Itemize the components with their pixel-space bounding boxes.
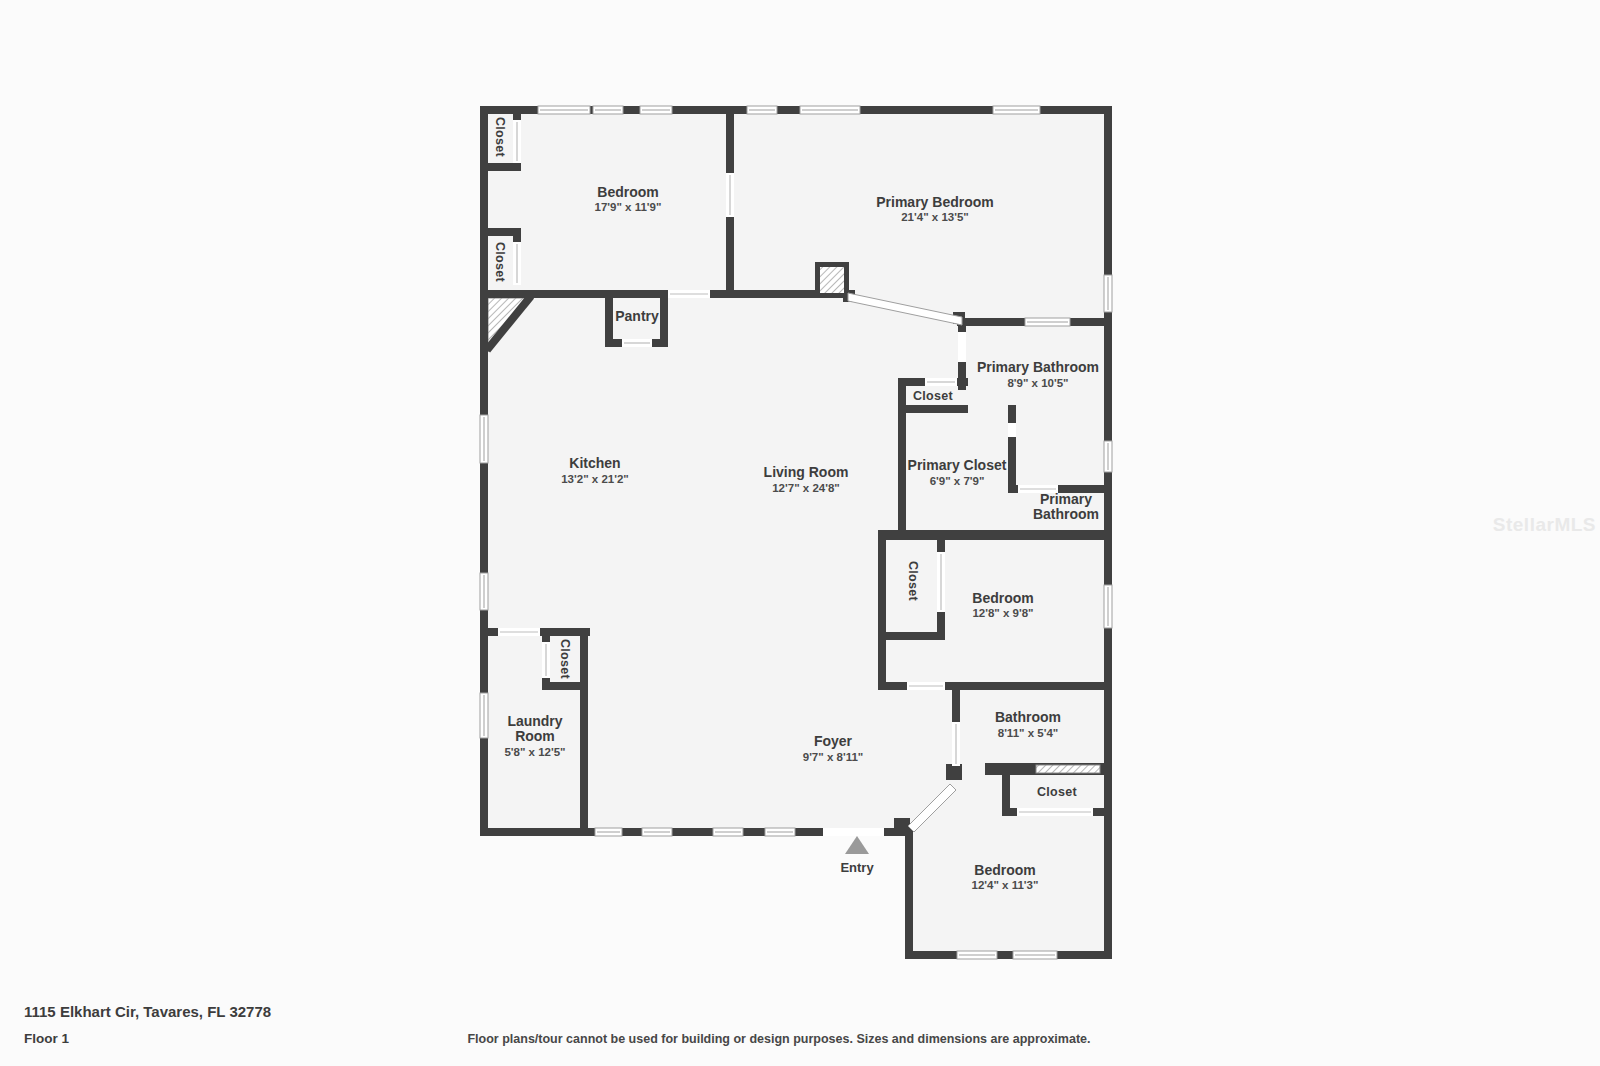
wall-segment — [946, 764, 962, 780]
room-label: Bedroom — [974, 862, 1035, 878]
property-address: 1115 Elkhart Cir, Tavares, FL 32778 — [24, 1003, 271, 1020]
room-label: Primary Bedroom — [876, 194, 993, 210]
room-label: Closet — [558, 639, 572, 680]
entry-label: Entry — [840, 860, 874, 875]
room-label: Primary Bathroom — [977, 359, 1099, 375]
wall-segment — [580, 628, 588, 828]
room-label: Closet — [493, 117, 507, 158]
room-dims: 6'9" x 7'9" — [930, 475, 985, 487]
door-opening — [958, 332, 966, 362]
wall-segment — [513, 106, 521, 120]
room-label: Living Room — [764, 464, 849, 480]
disclaimer-text: Floor plans/tour cannot be used for buil… — [0, 1032, 1558, 1046]
wall-segment — [513, 228, 521, 242]
room-label: Room — [515, 728, 555, 744]
floor-plan-drawing: Closet Closet Bedroom 17'9" x 11'9" Prim… — [0, 0, 1600, 1066]
room-label: Foyer — [814, 733, 853, 749]
wall-segment — [905, 951, 1112, 959]
room-label: Closet — [1037, 785, 1078, 799]
wall-segment — [886, 632, 945, 640]
floor-plan-page: Closet Closet Bedroom 17'9" x 11'9" Prim… — [0, 0, 1600, 1066]
wall-segment — [480, 163, 521, 171]
door-opening — [1008, 423, 1016, 437]
room-dims: 17'9" x 11'9" — [595, 201, 662, 213]
room-dims: 8'11" x 5'4" — [998, 727, 1059, 739]
room-label: Kitchen — [569, 455, 620, 471]
room-dims: 13'2" x 21'2" — [561, 473, 629, 485]
room-dims: 12'7" x 24'8" — [772, 482, 840, 494]
wall-segment — [878, 530, 1112, 540]
room-label: Bathroom — [1033, 506, 1099, 522]
room-label: Closet — [913, 389, 954, 403]
hatch-insert — [820, 267, 844, 293]
room-dims: 8'9" x 10'5" — [1007, 377, 1068, 389]
wall-segment — [952, 690, 960, 722]
room-dims: 21'4" x 13'5" — [901, 211, 969, 223]
room-dims: 5'8" x 12'5" — [504, 746, 565, 758]
wall-segment — [734, 290, 817, 298]
entry-arrow-icon — [845, 836, 869, 854]
wall-segment — [898, 378, 906, 540]
room-label: Closet — [493, 242, 507, 283]
hatch-insert — [1036, 765, 1100, 773]
wall-segment — [898, 405, 968, 413]
room-label: Laundry — [507, 713, 562, 729]
room-label: Bathroom — [995, 709, 1061, 725]
wall-segment — [878, 540, 886, 690]
room-dims: 9'7" x 8'11" — [803, 751, 864, 763]
room-dims: 12'8" x 9'8" — [972, 607, 1033, 619]
room-label: Primary Closet — [908, 457, 1007, 473]
wall-segment — [542, 682, 588, 690]
room-label: Bedroom — [597, 184, 658, 200]
room-dims: 12'4" x 11'3" — [972, 879, 1039, 891]
wall-segment — [905, 828, 913, 959]
room-label: Pantry — [615, 308, 659, 324]
room-label: Closet — [906, 561, 920, 602]
stellar-mls-watermark: StellarMLS — [1493, 514, 1596, 536]
room-label: Bedroom — [972, 590, 1033, 606]
room-label: Primary — [1040, 491, 1092, 507]
entry-opening — [823, 828, 884, 836]
wall-segment — [1008, 405, 1016, 493]
